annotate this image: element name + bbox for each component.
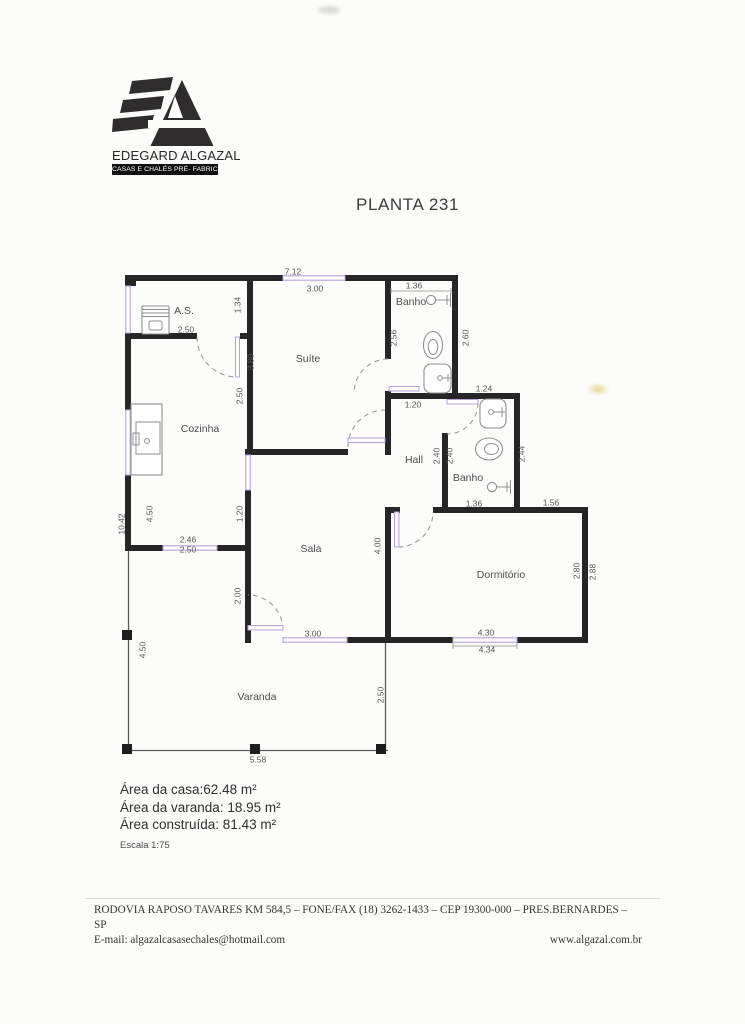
door-arc-as	[197, 337, 237, 377]
door-leaf-banho2	[447, 400, 478, 405]
footer-divider	[85, 898, 660, 899]
dimension-label: 1.36	[466, 498, 483, 508]
dimension-labels: 7.123.001.361.342.502.562.603.802.501.24…	[116, 266, 597, 764]
door-leaf-as	[236, 337, 240, 377]
dimension-label: 2.50	[180, 544, 197, 554]
room-label: A.S.	[174, 305, 194, 317]
dimension-label: 1.20	[234, 505, 244, 522]
varanda-post	[376, 744, 386, 754]
dimension-label: 4.50	[137, 641, 147, 658]
door-arc-banho1	[354, 359, 388, 393]
window-sala-bottom	[283, 638, 347, 642]
dimension-label: 4.34	[479, 644, 496, 654]
door-arc-varanda	[248, 595, 283, 630]
room-label: Cozinha	[181, 423, 220, 435]
document-page: EDEGARD ALGAZAL CASAS E CHALÉS PRÉ- FABR…	[0, 0, 745, 1024]
area-house: Área da casa:62.48 m²	[120, 781, 281, 799]
dimension-label: 7.12	[285, 266, 302, 276]
varanda-post	[250, 744, 260, 754]
dimension-label: 2.60	[460, 329, 470, 346]
dimension-label: 2.00	[232, 587, 242, 604]
dimension-label: 1.20	[405, 399, 422, 409]
dimension-label: 2.56	[388, 329, 398, 346]
footer-email: E-mail: algazalcasasechales@hotmail.com	[94, 933, 285, 948]
door-leaf-dormitorio	[395, 512, 400, 547]
bathroom-sink-icon	[424, 364, 452, 393]
door-leaf-suite	[348, 438, 385, 443]
area-summary: Área da casa:62.48 m² Área da varanda: 1…	[120, 781, 281, 854]
varanda-post	[122, 630, 132, 640]
door-leaf-banho1	[389, 387, 419, 392]
dimension-label: 3.00	[307, 283, 324, 293]
footer: RODOVIA RAPOSO TAVARES KM 584,5 – FONE/F…	[94, 903, 642, 948]
dimension-label: 5.58	[250, 754, 267, 764]
dimension-label: 1.34	[232, 296, 242, 313]
window-dormitorio-bottom	[453, 638, 517, 642]
room-label: Banho	[396, 296, 427, 308]
dimension-label: 4.50	[144, 505, 154, 522]
window-as-left	[126, 286, 130, 333]
dimension-label: 2.88	[587, 563, 597, 580]
dimension-label: 4.00	[372, 537, 382, 554]
toilet-icon	[424, 332, 443, 359]
varanda-post	[122, 744, 132, 754]
dimension-label: 10.42	[116, 513, 126, 535]
dimension-label: 2.80	[571, 562, 581, 579]
toilet-icon	[476, 438, 503, 460]
room-label: Banho	[453, 472, 484, 484]
dimension-label: 2.40	[431, 447, 441, 464]
dimension-label: 1.36	[406, 280, 423, 290]
window-sala-left	[246, 455, 250, 490]
drawing-scale: Escala 1:75	[120, 837, 281, 855]
room-label: Suíte	[296, 353, 321, 365]
footer-website: www.algazal.com.br	[550, 933, 642, 948]
dimension-label: 2.50	[234, 387, 244, 404]
dimension-label: 3.80	[245, 353, 255, 370]
door-arc-banho2	[447, 403, 478, 434]
shower-icon	[487, 480, 511, 494]
dimension-label: 4.30	[478, 627, 495, 637]
floor-plan-drawing: A.S.SuíteBanhoCozinhaHallBanhoSalaDormit…	[0, 0, 745, 1024]
room-label: Sala	[300, 543, 321, 555]
kitchen-sink-icon	[131, 404, 162, 475]
scan-smudge	[586, 383, 610, 396]
room-label: Hall	[405, 454, 423, 466]
room-label: Dormitório	[477, 569, 526, 581]
room-label: Varanda	[238, 691, 277, 703]
dimension-label: 2.50	[178, 324, 195, 334]
dimension-label: 2.44	[516, 445, 526, 462]
dimension-label: 2.40	[444, 447, 454, 464]
area-built: Área construída: 81.43 m²	[120, 816, 281, 834]
dimension-label: 1.24	[476, 383, 493, 393]
varanda-outline	[122, 551, 388, 754]
area-porch: Área da varanda: 18.95 m²	[120, 799, 281, 817]
dimension-label: 2.46	[180, 534, 197, 544]
washing-machine-icon	[142, 306, 169, 334]
footer-address: RODOVIA RAPOSO TAVARES KM 584,5 – FONE/F…	[94, 903, 642, 933]
window-cozinha-left	[126, 410, 130, 475]
dimension-label: 3.00	[305, 628, 322, 638]
door-leaf-varanda	[248, 626, 283, 631]
bathroom-sink-icon	[480, 399, 506, 428]
door-arc-dormitorio	[398, 512, 433, 547]
dimension-label: 1.56	[543, 497, 560, 507]
dimension-label: 2.50	[375, 686, 385, 703]
shower-icon	[426, 293, 451, 307]
window-suite-top	[283, 276, 345, 280]
scan-smudge	[318, 6, 340, 14]
